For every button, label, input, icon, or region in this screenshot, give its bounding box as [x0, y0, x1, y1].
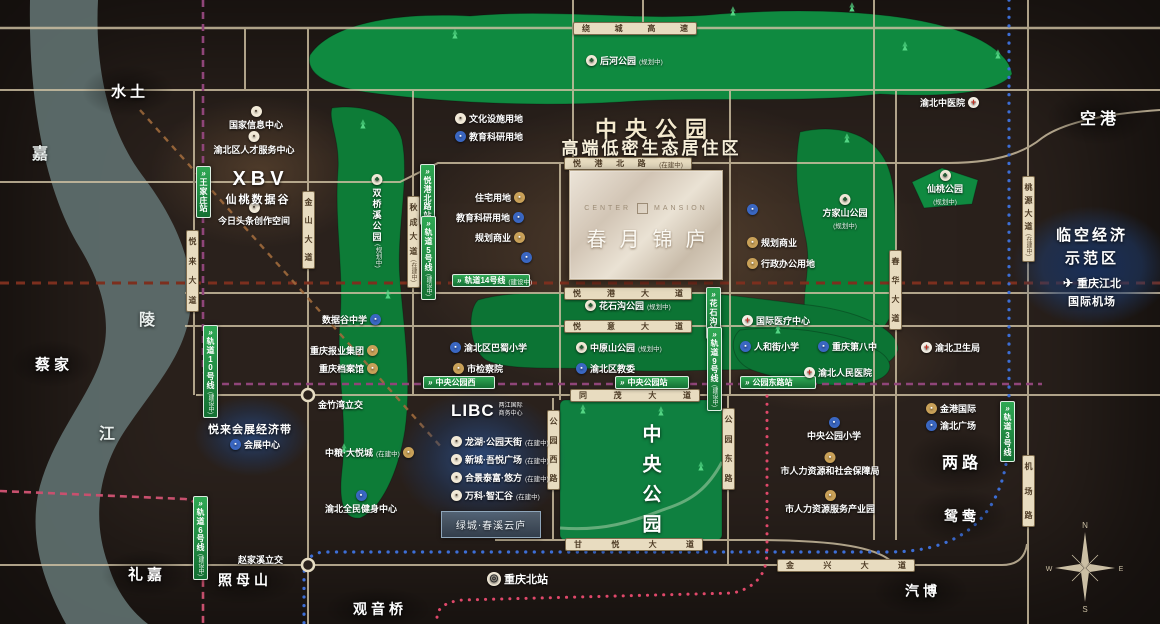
tree-icon: ▲ [774, 327, 783, 336]
poi-label: 金竹湾立交 [318, 398, 363, 411]
tree-icon: ▲ [697, 464, 706, 473]
metro-line-label: »轨道9号线(建设中) [707, 327, 722, 411]
central-park-title: 中央公园 [637, 424, 664, 544]
poi-label: 规划商业▪ [475, 231, 525, 244]
place-label: 蔡家 [31, 354, 73, 375]
river-name-char: 嘉 [32, 140, 48, 164]
poi-label: ▪ [747, 203, 758, 216]
poi-label: ▪会展中心 [230, 438, 280, 451]
poi-icon: ▪ [747, 237, 758, 248]
park-icon: ♣ [576, 342, 587, 353]
poi-icon: ▪ [824, 490, 835, 501]
greentown-project-box: 绿城·春溪云庐 [441, 511, 541, 538]
poi-label: ♣花石沟公园(规划中) [585, 299, 671, 312]
poi-icon: ▪ [455, 131, 466, 142]
poi-icon: ▪ [824, 452, 835, 463]
poi-icon: ▪ [370, 314, 381, 325]
libc-project-label: ▪龙湖·公园天街(在建中) [451, 435, 549, 448]
place-label: 水土 [107, 81, 149, 102]
metro-line-label: »轨道10号线(建设中) [203, 325, 218, 418]
tree-icon: ▲ [729, 9, 738, 18]
property-card: CENTER MANSION 春月锦庐 [569, 170, 723, 280]
tree-icon: ▲ [384, 292, 393, 301]
tree-icon: ▲ [848, 5, 857, 14]
hospital-icon: + [921, 342, 932, 353]
park-icon: ♣ [372, 174, 383, 185]
tree-icon: ▲ [359, 122, 368, 131]
place-label: 空港 [1076, 105, 1120, 129]
poi-label: 数据谷中学▪ [322, 313, 381, 326]
poi-icon: ▪ [453, 363, 464, 374]
metro-line-label: »轨道3号线 [1000, 401, 1015, 462]
poi-label: ▪渝北广场 [926, 419, 976, 432]
road-label: 秋成大道(在建中) [407, 196, 420, 288]
road-label: 桃源大道(在建中) [1022, 176, 1035, 262]
poi-label: 重庆档案馆▪ [319, 362, 378, 375]
road-label: 悦意大道 [564, 320, 692, 333]
poi-icon: ▪ [451, 472, 462, 483]
park-icon: ♣ [839, 194, 850, 205]
poi-icon: ▪ [455, 113, 466, 124]
poi-icon: ▪ [230, 439, 241, 450]
poi-label: ▪ [521, 251, 532, 264]
poi-icon: ▪ [576, 363, 587, 374]
road-label: 悦来大道 [186, 230, 199, 312]
metro-station-label: »轨道14号线(建设中) [452, 274, 530, 287]
poi-label: 中粮·大悦城(在建中)▪ [325, 446, 414, 459]
poi-icon: ▪ [521, 252, 532, 263]
poi-label: 教育科研用地▪ [456, 211, 524, 224]
poi-icon: ▪ [828, 417, 839, 428]
poi-icon: ▪ [514, 232, 525, 243]
poi-label: ♣方家山公园(规划中) [822, 194, 867, 230]
libc-project-label: ▪合景泰富·悠方(在建中) [451, 471, 549, 484]
property-name: 春月锦庐 [570, 223, 722, 252]
train-station-icon: ◎ [487, 572, 501, 586]
metro-line-label: »王家庄站 [196, 166, 211, 218]
metro-line-label: »轨道6号线(建设中) [193, 496, 208, 580]
libc-project-label: ▪万科·智汇谷(在建中) [451, 489, 540, 502]
poi-icon: ▪ [367, 363, 378, 374]
poi-icon: ▪ [451, 436, 462, 447]
poi-icon: ▪ [367, 345, 378, 356]
poi-label: ▪市人力资源服务产业园 [785, 490, 875, 515]
road-label: 公园东路 [722, 408, 735, 490]
road-label: 金兴大道 [777, 559, 915, 572]
place-label: 鸳鸯 [940, 506, 980, 526]
poi-label: ▪渝北区人才服务中心 [213, 131, 294, 156]
road-label: 金山大道 [302, 191, 315, 269]
poi-label: ▪教育科研用地 [455, 130, 523, 143]
poi-label: 赵家溪立交 [238, 553, 283, 566]
road-label: 甘悦大道 [565, 538, 703, 551]
poi-label: ▪行政办公用地 [747, 257, 815, 270]
place-label: 照母山 [214, 570, 272, 590]
poi-icon: ▪ [740, 341, 751, 352]
poi-label: ♣仙桃公园(规划中) [927, 170, 963, 206]
location-map: N S E W 临空经济 示范区 ✈ 重庆江北 国际机场 ▲▲▲▲▲▲▲▲▲▲▲… [0, 0, 1160, 624]
poi-icon: ▪ [250, 106, 261, 117]
poi-icon: ▪ [818, 341, 829, 352]
poi-label: ▪渝北区巴蜀小学 [450, 341, 527, 354]
tree-icon: ▲ [843, 136, 852, 145]
libc-project-label: ▪新城·吾悦广场(在建中) [451, 453, 549, 466]
poi-label: ♣中原山公园(规划中) [576, 341, 662, 354]
park-icon: ♣ [585, 300, 596, 311]
road-label: 绕城高速 [573, 22, 697, 35]
metro-station-label: »中央公园西 [423, 376, 495, 389]
poi-icon: ▪ [403, 447, 414, 458]
poi-icon: ▪ [248, 131, 259, 142]
hospital-icon: + [804, 367, 815, 378]
poi-label: +渝北人民医院 [804, 366, 872, 379]
poi-label: ◎重庆北站 [487, 572, 548, 585]
poi-label: ▪渝北全民健身中心 [325, 490, 397, 515]
label-layer: ▲▲▲▲▲▲▲▲▲▲▲▲▲水土蔡家礼嘉照母山观音桥空港两路鸳鸯汽博嘉陵江绕城高速… [0, 0, 1160, 624]
poi-label: ▪市检察院 [453, 362, 503, 375]
poi-icon: ▪ [926, 403, 937, 414]
poi-icon: ▪ [450, 342, 461, 353]
libc-title: LIBC 两江国际 商务中心 [451, 401, 523, 421]
place-label: 礼嘉 [124, 564, 166, 585]
poi-label: ▪文化设施用地 [455, 112, 523, 125]
metro-station-label: »中央公园站 [615, 376, 689, 389]
park-icon: ♣ [939, 170, 950, 181]
place-label: 两路 [938, 449, 982, 473]
hospital-icon: + [742, 315, 753, 326]
poi-label: ▪市人力资源和社会保障局 [780, 452, 879, 477]
river-name-char: 江 [99, 420, 115, 444]
poi-label: +渝北卫生局 [921, 341, 980, 354]
poi-label: ▪规划商业 [747, 236, 797, 249]
road-label: 机场路 [1022, 455, 1035, 527]
headline-line2: 高端低密生态居住区 [559, 134, 742, 159]
metro-line-label: »轨道5号线(建设中) [421, 216, 436, 300]
property-english-name: CENTER MANSION [570, 203, 722, 214]
poi-icon: ▪ [451, 454, 462, 465]
poi-icon: ▪ [513, 212, 524, 223]
place-label: 汽博 [901, 581, 941, 601]
poi-icon: ▪ [514, 192, 525, 203]
hospital-icon: + [968, 97, 979, 108]
poi-label: 重庆报业集团▪ [310, 344, 378, 357]
poi-label: ♣双桥溪公园(规划中) [371, 174, 384, 268]
property-logo-icon [637, 203, 648, 214]
poi-label: ♣后河公园(规划中) [586, 54, 663, 67]
river-name-char: 陵 [139, 306, 155, 330]
poi-label: ▪金港国际 [926, 402, 976, 415]
poi-label: ▪渝北区教委 [576, 362, 635, 375]
tree-icon: ▲ [994, 52, 1003, 61]
place-label: 观音桥 [349, 599, 407, 619]
road-label: 春华大道 [889, 250, 902, 330]
xbv-data-valley: XBV 仙桃数据谷 [226, 168, 291, 207]
poi-icon: ▪ [747, 258, 758, 269]
poi-label: +国际医疗中心 [742, 314, 810, 327]
poi-icon: ▪ [926, 420, 937, 431]
poi-label: 渝北中医院+ [920, 96, 979, 109]
poi-label: ▪中央公园小学 [807, 417, 861, 442]
park-icon: ♣ [586, 55, 597, 66]
poi-label: ▪人和街小学 [740, 340, 799, 353]
tree-icon: ▲ [901, 44, 910, 53]
poi-icon: ▪ [355, 490, 366, 501]
poi-label: ▪重庆第八中 [818, 340, 877, 353]
tree-icon: ▲ [579, 407, 588, 416]
poi-icon: ▪ [451, 490, 462, 501]
yuelai-zone-title: 悦来会展经济带 [208, 421, 292, 437]
poi-icon: ▪ [747, 204, 758, 215]
poi-label: ▪国家信息中心 [229, 106, 283, 131]
road-label: 同茂大道 [570, 389, 700, 402]
tree-icon: ▲ [657, 409, 666, 418]
poi-label: 住宅用地▪ [475, 191, 525, 204]
tree-icon: ▲ [451, 32, 460, 41]
